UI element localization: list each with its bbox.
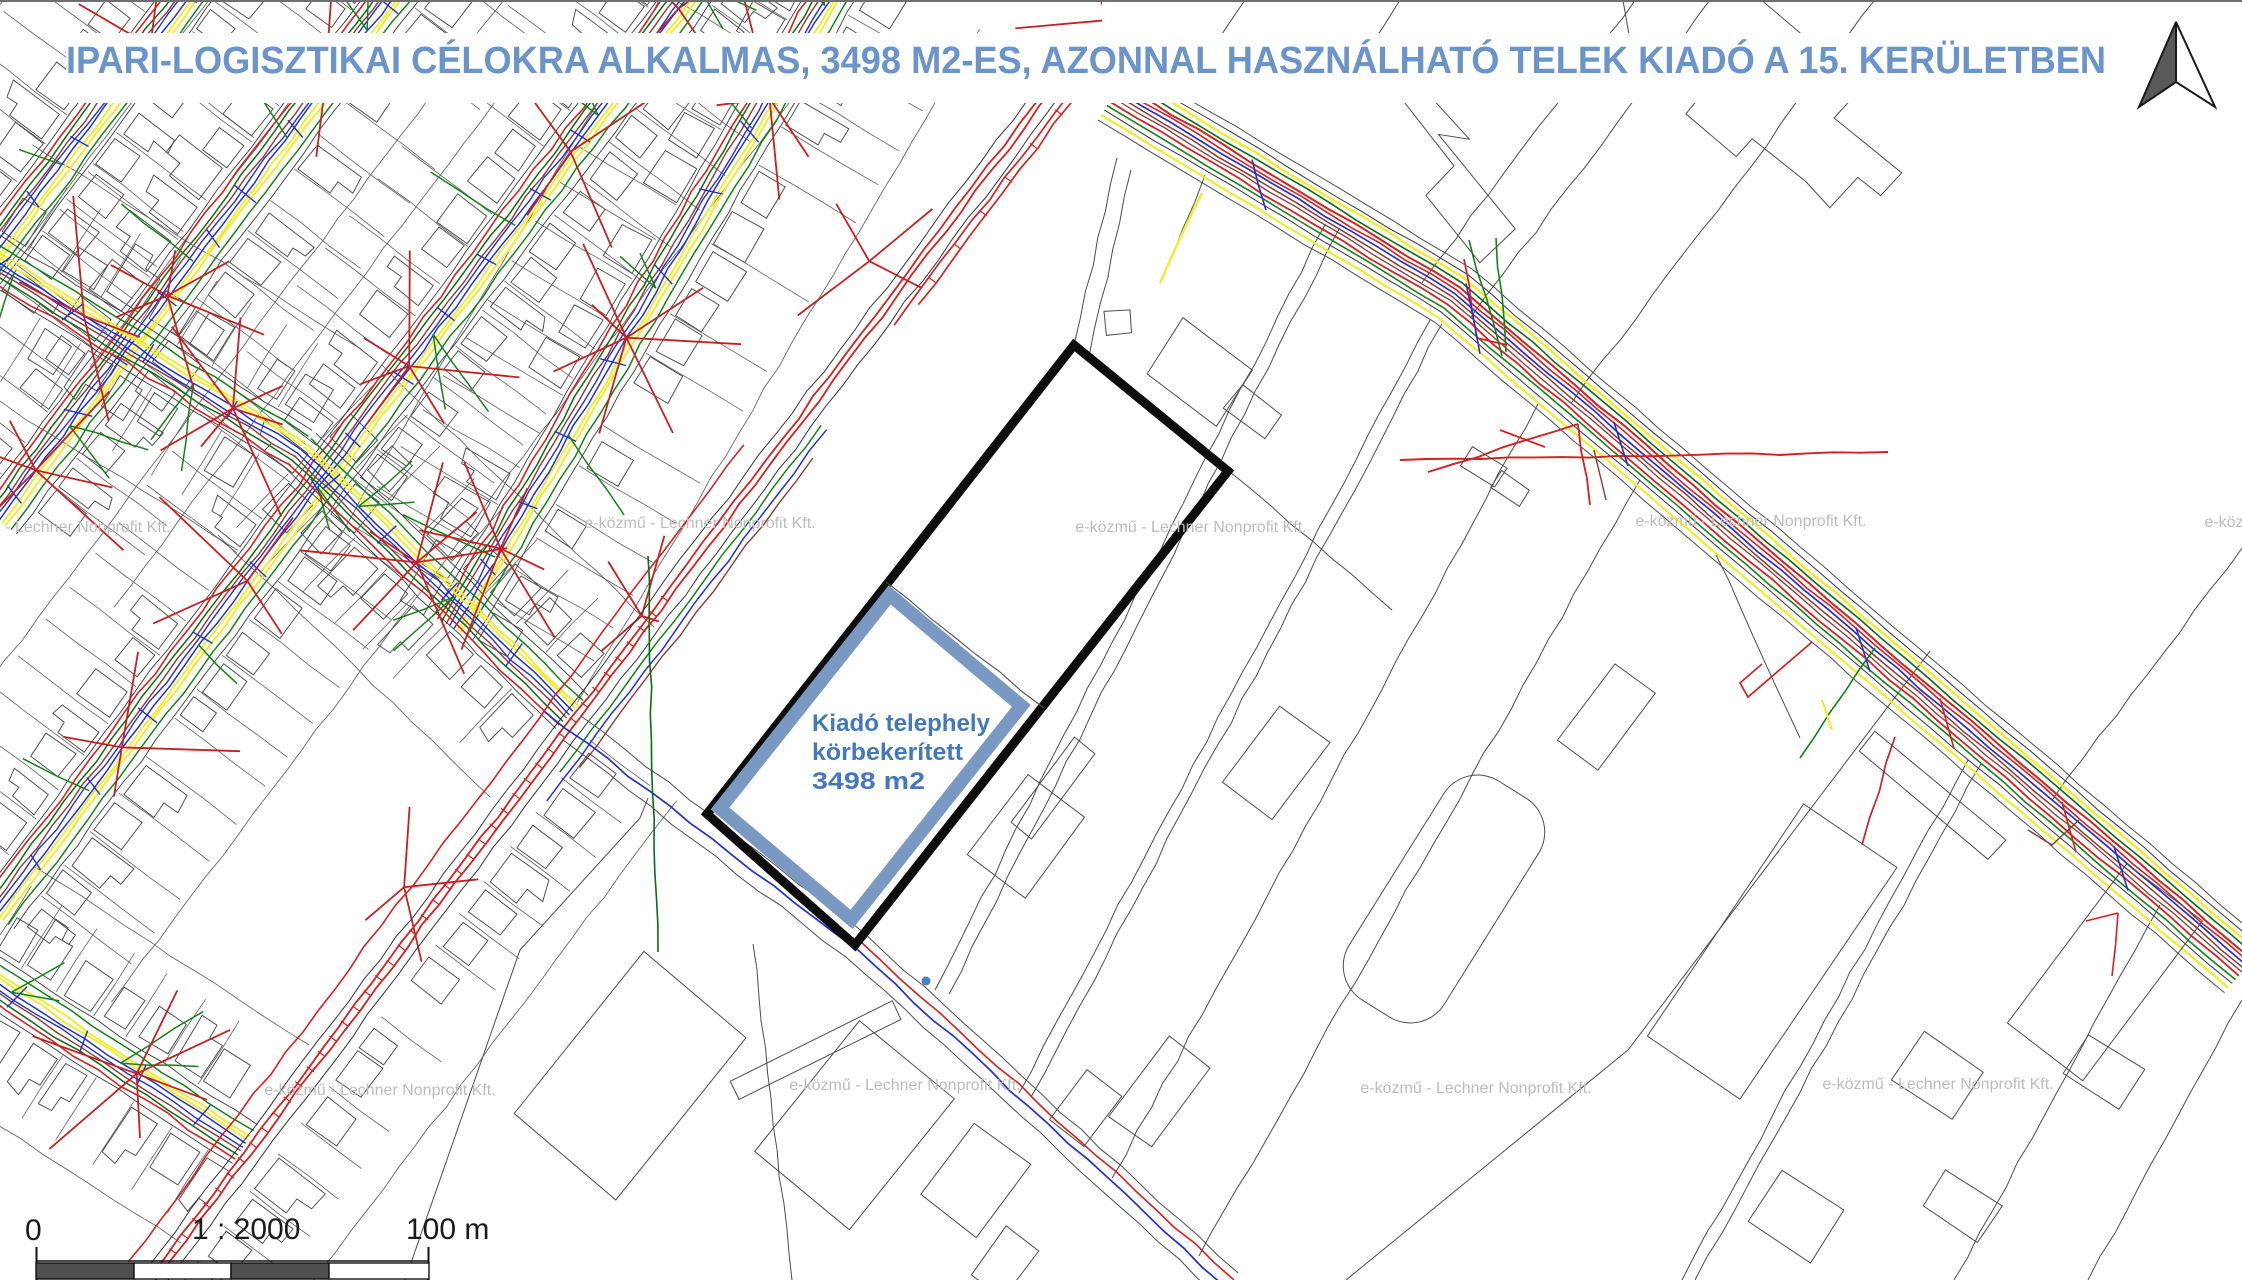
svg-text:100 m: 100 m: [406, 1213, 489, 1246]
svg-text:e-közmű - Lechner Nonprofit Kf: e-közmű - Lechner Nonprofit Kft.: [1075, 519, 1306, 536]
svg-text:e-közmű - Lechner Nonprofit Kf: e-közmű - Lechner Nonprofit Kft.: [2204, 514, 2242, 531]
svg-text:e-közmű - Lechner Nonprofit Kf: e-közmű - Lechner Nonprofit Kft.: [264, 1082, 495, 1099]
svg-text:Kiadó telephely: Kiadó telephely: [812, 710, 991, 737]
svg-text:e-közmű - Lechner Nonprofit Kf: e-közmű - Lechner Nonprofit Kft.: [0, 519, 171, 536]
svg-text:e-közmű - Lechner Nonprofit Kf: e-közmű - Lechner Nonprofit Kft.: [1635, 513, 1866, 530]
svg-text:e-közmű - Lechner Nonprofit Kf: e-közmű - Lechner Nonprofit Kft.: [1822, 1076, 2053, 1093]
svg-text:IPARI-LOGISZTIKAI CÉLOKRA ALKA: IPARI-LOGISZTIKAI CÉLOKRA ALKALMAS, 3498…: [66, 38, 2106, 82]
svg-text:1 : 2000: 1 : 2000: [192, 1213, 300, 1246]
svg-text:körbekerített: körbekerített: [812, 739, 963, 766]
svg-text:e-közmű - Lechner Nonprofit Kf: e-közmű - Lechner Nonprofit Kft.: [789, 1077, 1020, 1094]
svg-text:0: 0: [25, 1214, 42, 1247]
svg-text:e-közmű - Lechner Nonprofit Kf: e-közmű - Lechner Nonprofit Kft.: [1360, 1080, 1591, 1097]
svg-text:3498 m2: 3498 m2: [812, 768, 925, 795]
svg-text:e-közmű - Lechner Nonprofit Kf: e-közmű - Lechner Nonprofit Kft.: [584, 515, 815, 532]
